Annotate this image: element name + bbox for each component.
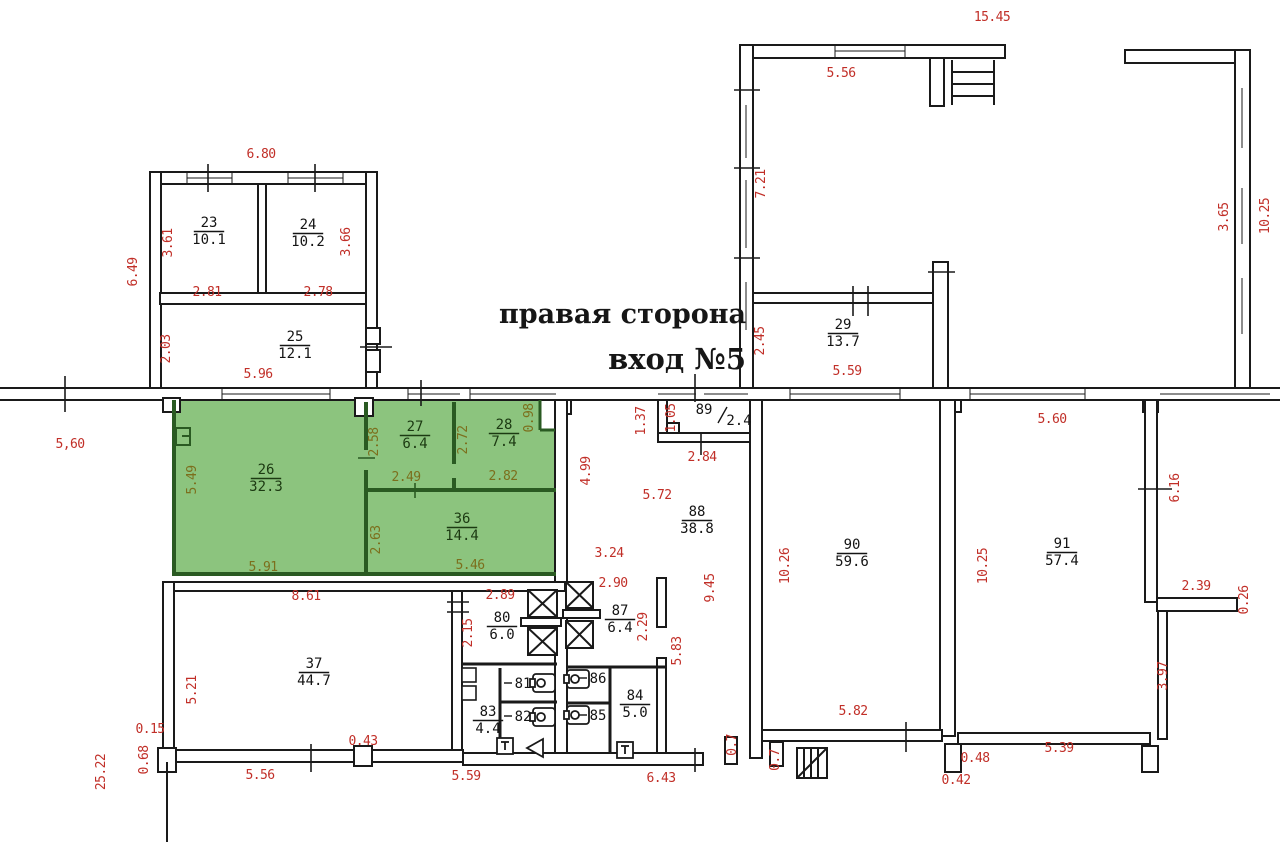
room-number-24: 24 — [300, 217, 317, 233]
room-number-28: 28 — [496, 417, 513, 433]
dimension-label: 1.05 — [664, 404, 679, 433]
dimension-label: 5.46 — [456, 558, 485, 573]
room-area-80: 6.0 — [489, 627, 514, 643]
staircase-icon — [952, 60, 994, 105]
dimension-label: 6.43 — [647, 771, 676, 786]
dimension-label: 5.56 — [827, 66, 856, 81]
dimension-label: 0.15 — [136, 722, 165, 737]
room-number-88: 88 — [689, 504, 706, 520]
dimension-label: 6.16 — [1168, 474, 1183, 503]
room-number-27: 27 — [407, 419, 424, 435]
dimension-label: 0.42 — [942, 773, 971, 788]
dimension-label: 3.65 — [1217, 203, 1232, 232]
dimension-label: 3.24 — [595, 546, 625, 561]
room-number-89: 89 — [696, 402, 713, 418]
dimension-label: 0.98 — [522, 404, 537, 433]
dimension-label: 5.72 — [643, 488, 672, 503]
dimension-label: 2.63 — [369, 526, 384, 555]
dimension-label: 3.97 — [1156, 662, 1171, 691]
dimension-label: 2.81 — [193, 285, 222, 300]
dimension-label: 0.7 — [725, 734, 740, 756]
room-number-85: 85 — [590, 708, 607, 724]
dimension-label: 5.59 — [833, 364, 862, 379]
plan-title-line1: правая сторона — [499, 299, 746, 330]
door-jambs — [462, 668, 476, 700]
room-number-84: 84 — [627, 688, 644, 704]
room-number-25: 25 — [287, 329, 304, 345]
dimension-label: 6.49 — [126, 258, 141, 287]
dimension-label: 2.90 — [599, 576, 628, 591]
room-number-83: 83 — [480, 704, 497, 720]
room-number-90: 90 — [844, 537, 861, 553]
dimension-label: 5.83 — [670, 637, 685, 666]
dimension-label: 10.25 — [976, 548, 991, 584]
room-area-84: 5.0 — [622, 705, 647, 721]
dimension-label: 7.21 — [754, 170, 769, 199]
room-area-88: 38.8 — [680, 521, 714, 537]
room-area-23: 10.1 — [192, 232, 226, 248]
room-number-82: 82 — [515, 709, 532, 725]
dimension-label: 5.82 — [839, 704, 868, 719]
dimension-label: 5.21 — [185, 676, 200, 705]
room-area-37: 44.7 — [297, 673, 331, 689]
dimension-label: 5.96 — [244, 367, 273, 382]
room-area-26: 32.3 — [249, 479, 283, 495]
room-number-37: 37 — [306, 656, 323, 672]
dimension-label: 2.39 — [1182, 579, 1211, 594]
dimension-label: 0.48 — [961, 751, 990, 766]
dimension-label: 2.82 — [489, 469, 518, 484]
dimension-label: 9.45 — [703, 574, 718, 603]
dimension-label: 2.58 — [367, 428, 382, 457]
room-area-27: 6.4 — [402, 436, 427, 452]
dimension-label: 5.56 — [246, 768, 275, 783]
dimension-label: 5.60 — [1038, 412, 1067, 427]
dimension-label: 0.26 — [1237, 586, 1252, 615]
dimension-label: 2.15 — [461, 619, 476, 648]
room-area-90: 59.6 — [835, 554, 869, 570]
dimension-label: 0.7 — [768, 749, 783, 771]
dimension-label: 5,60 — [56, 437, 85, 452]
room-number-91: 91 — [1054, 536, 1071, 552]
room-area-87: 6.4 — [607, 620, 632, 636]
dimension-label: 15.45 — [974, 10, 1010, 25]
room-area-29: 13.7 — [826, 334, 860, 350]
dimension-label: 2.29 — [636, 613, 651, 642]
dimension-label: 5.39 — [1045, 741, 1074, 756]
dimension-label: 2.89 — [486, 588, 515, 603]
dimension-label: 25.22 — [94, 754, 109, 790]
room-area-83: 4.4 — [475, 721, 500, 737]
floor-plan-page: правая сторона вход №5 6.806.493.613.662… — [0, 0, 1280, 842]
room-number-87: 87 — [612, 603, 629, 619]
floor-plan-drawing: правая сторона вход №5 6.806.493.613.662… — [0, 0, 1280, 842]
dimension-label: 2.49 — [392, 470, 421, 485]
dimension-label: 3.61 — [161, 229, 176, 258]
room-number-81: 81 — [515, 676, 532, 692]
dimension-label: 2.84 — [688, 450, 718, 465]
room-number-86: 86 — [590, 671, 607, 687]
dimension-label: 5.49 — [185, 466, 200, 495]
dimension-label: 2.72 — [456, 426, 471, 455]
dimension-label: 5.59 — [452, 769, 481, 784]
dimension-label: 2.78 — [304, 285, 333, 300]
room-number-23: 23 — [201, 215, 218, 231]
dimension-label: 5.91 — [249, 560, 278, 575]
room-area-89: 2.4 — [726, 413, 751, 429]
dimension-label: 10.26 — [778, 548, 793, 584]
room-area-24: 10.2 — [291, 234, 325, 250]
dimension-label: 2.03 — [159, 335, 174, 364]
dimension-label: 8.61 — [292, 589, 321, 604]
dimension-label: 10.25 — [1258, 198, 1273, 234]
dimension-label: 6.80 — [247, 147, 276, 162]
room-number-29: 29 — [835, 317, 852, 333]
room-area-36: 14.4 — [445, 528, 479, 544]
room-area-91: 57.4 — [1045, 553, 1079, 569]
dimension-label: 1.37 — [634, 407, 649, 436]
dimension-label: 0.43 — [349, 734, 378, 749]
dimension-label: 0.68 — [137, 746, 152, 775]
plan-title-line2: вход №5 — [608, 342, 746, 376]
room-number-26: 26 — [258, 462, 275, 478]
dimension-label: 2.45 — [753, 327, 768, 356]
stairs-icon — [797, 748, 827, 778]
dimension-label: 4.99 — [579, 457, 594, 486]
room-area-28: 7.4 — [491, 434, 516, 450]
room-area-25: 12.1 — [278, 346, 312, 362]
door-icon — [176, 428, 190, 445]
room-number-36: 36 — [454, 511, 471, 527]
room-number-80: 80 — [494, 610, 511, 626]
dimension-label: 3.66 — [339, 228, 354, 257]
